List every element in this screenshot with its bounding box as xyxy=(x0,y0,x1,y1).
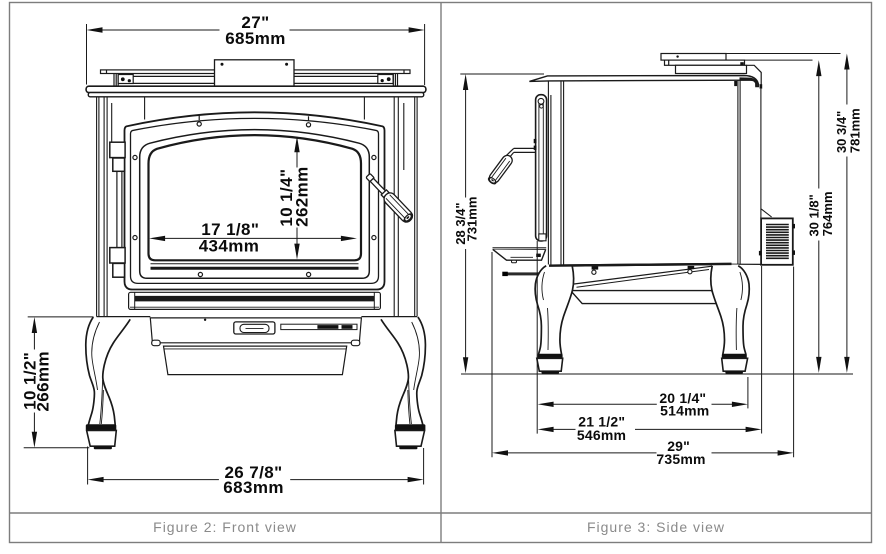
svg-text:781mm: 781mm xyxy=(847,108,862,153)
svg-text:262mm: 262mm xyxy=(293,166,312,227)
svg-text:Figure 2: Front view: Figure 2: Front view xyxy=(153,519,297,535)
svg-text:546mm: 546mm xyxy=(577,427,626,443)
svg-text:735mm: 735mm xyxy=(656,451,705,467)
svg-text:266mm: 266mm xyxy=(33,351,52,412)
svg-text:683mm: 683mm xyxy=(223,478,284,497)
svg-text:685mm: 685mm xyxy=(225,29,286,48)
svg-text:731mm: 731mm xyxy=(465,197,480,242)
svg-text:514mm: 514mm xyxy=(660,402,709,418)
svg-text:434mm: 434mm xyxy=(199,236,260,255)
svg-text:Figure 3: Side view: Figure 3: Side view xyxy=(587,519,725,535)
svg-text:764mm: 764mm xyxy=(820,191,835,236)
